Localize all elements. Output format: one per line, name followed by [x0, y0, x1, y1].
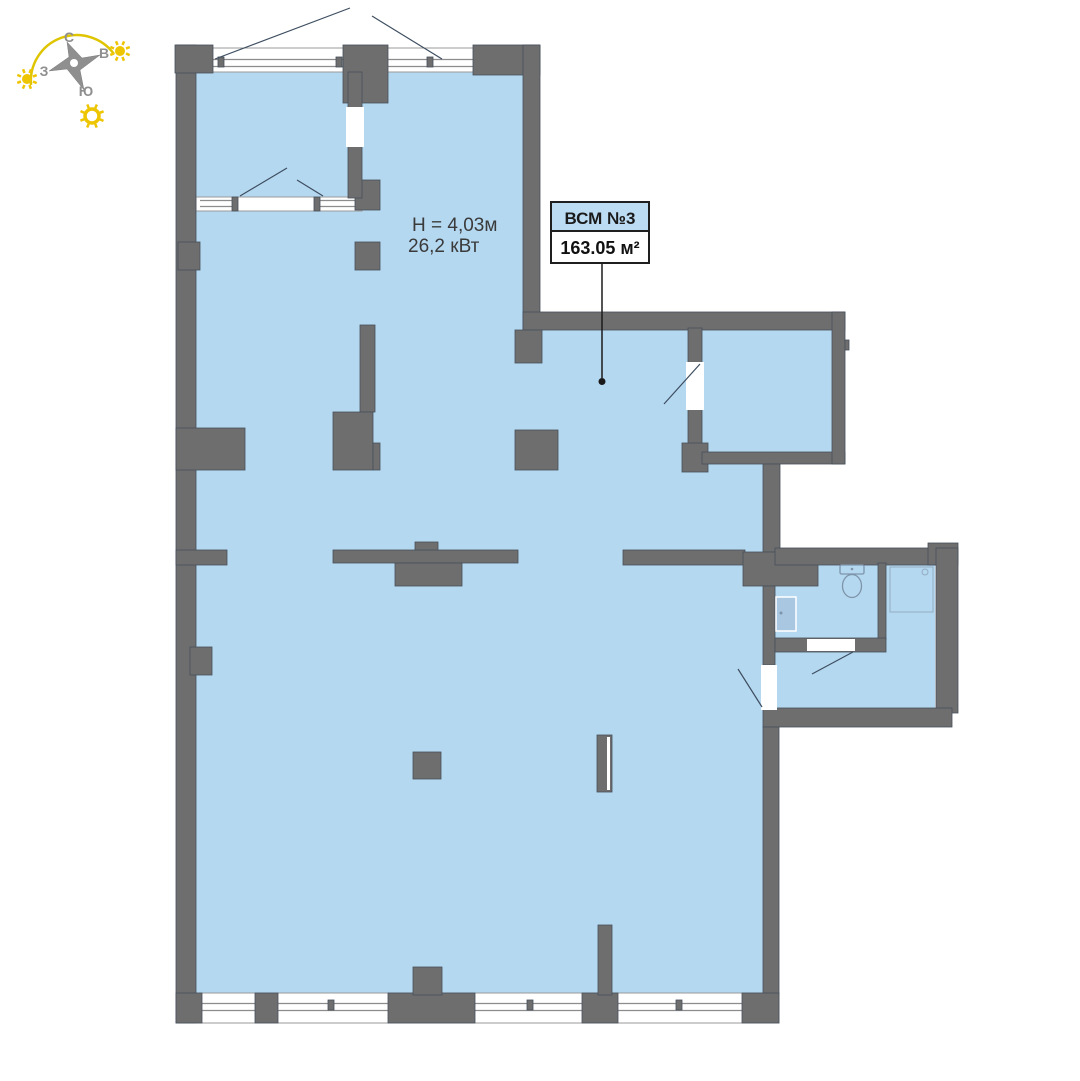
sun-ray [95, 104, 97, 108]
sun-ray [80, 111, 84, 113]
washbasin-icon [776, 597, 796, 631]
compass-star-hub [70, 59, 78, 67]
sun-ray [100, 111, 104, 113]
unit-name: ВСМ №3 [565, 209, 636, 228]
wall-segment [527, 1000, 533, 1010]
sun-ray [23, 69, 25, 73]
sun-icon [22, 74, 32, 84]
toilet-button-icon [851, 568, 854, 571]
door-opening [761, 665, 777, 710]
wall-segment [333, 412, 373, 470]
wall-segment [415, 542, 438, 550]
wall-segment [395, 563, 462, 586]
compass-north-label: С [64, 29, 74, 45]
wall-segment [515, 430, 558, 470]
wall-segment [742, 993, 779, 1023]
wall-segment [176, 45, 196, 1023]
wall-segment [218, 57, 224, 67]
floor-area [702, 325, 832, 452]
wall-segment [176, 993, 202, 1023]
sun-icon [115, 46, 125, 56]
door-opening [607, 737, 610, 790]
wall-segment [176, 550, 227, 565]
wall-segment [763, 586, 775, 665]
wall-segment [176, 428, 245, 470]
sun-ray [123, 41, 125, 45]
sun-ray [116, 57, 118, 61]
window-band [196, 197, 362, 211]
wall-segment [845, 340, 849, 350]
sun-ray [126, 47, 130, 49]
washbasin-tap-icon [780, 612, 783, 615]
wall-segment [598, 925, 612, 995]
sun-ray [87, 104, 89, 108]
sun-ray [116, 41, 118, 45]
wall-segment [523, 312, 845, 330]
wall-segment [178, 242, 200, 270]
sun-ray [100, 119, 104, 121]
wall-segment [775, 548, 936, 565]
floor-plan-canvas: H = 4,03м 26,2 кВт ВСМ №3 163.05 м² С В … [0, 0, 1080, 1081]
wall-segment [763, 727, 779, 995]
wall-segment [388, 993, 475, 1023]
label-leader-dot [599, 378, 606, 385]
wall-segment [936, 548, 958, 713]
wall-segment [373, 443, 380, 470]
sun-ray [110, 47, 114, 49]
wall-segment [336, 57, 342, 67]
wall-segment [676, 1000, 682, 1010]
wall-segment [355, 242, 380, 270]
compass-south-label: Ю [79, 83, 93, 99]
wall-segment [427, 57, 433, 67]
wall-segment [523, 45, 540, 330]
wall-segment [190, 647, 212, 675]
floor-plan-page: H = 4,03м 26,2 кВт ВСМ №3 163.05 м² С В … [0, 0, 1080, 1081]
sun-ray [29, 85, 31, 89]
wall-segment [360, 325, 375, 412]
wall-segment [333, 550, 518, 563]
wall-segment [515, 330, 542, 363]
sun-ray [17, 81, 21, 83]
sun-ray [87, 124, 89, 128]
wall-segment [255, 993, 278, 1023]
wall-segment [832, 312, 845, 464]
ceiling-height-label: H = 4,03м [412, 215, 497, 236]
wall-segment [702, 452, 845, 464]
compass-star-icon [17, 35, 129, 127]
sun-ray [17, 75, 21, 77]
sun-ray [30, 69, 32, 73]
sun-icon [85, 109, 99, 123]
sun-ray [126, 54, 130, 56]
wall-segment [623, 550, 745, 565]
wall-segment [582, 993, 618, 1023]
sun-ray [80, 119, 84, 121]
wall-segment [413, 752, 441, 779]
compass-west-label: З [40, 63, 49, 79]
sun-ray [33, 75, 37, 77]
wall-segment [175, 45, 213, 73]
unit-area: 163.05 м² [560, 238, 639, 258]
wall-segment [232, 197, 238, 211]
wall-segment [763, 464, 780, 552]
sun-ray [122, 57, 124, 61]
wall-segment [763, 708, 952, 727]
power-label: 26,2 кВт [408, 236, 480, 257]
sun-ray [95, 124, 97, 128]
wall-segment [328, 1000, 334, 1010]
compass-east-label: В [99, 45, 109, 61]
sun-ray [33, 82, 37, 84]
wall-segment [413, 967, 442, 995]
wall-segment [314, 197, 320, 211]
wall-segment [878, 563, 886, 640]
compass-rose: С В З Ю [17, 29, 129, 128]
door-opening [346, 107, 364, 147]
sun-ray [23, 85, 25, 89]
sun-ray [110, 53, 114, 55]
door-opening [807, 639, 855, 651]
